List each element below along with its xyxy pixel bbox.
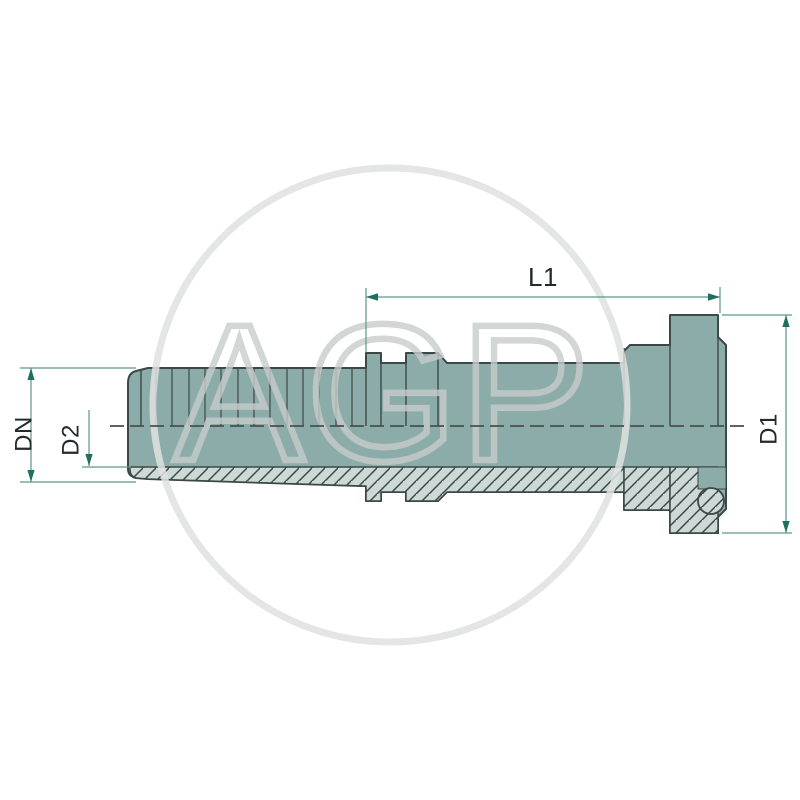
label-d2: D2	[58, 424, 85, 456]
arrow-down-icon	[85, 454, 92, 466]
o-ring-groove	[698, 467, 726, 489]
watermark: AGP	[153, 168, 627, 642]
section-wall-collar	[624, 467, 670, 510]
fitting-drawing: AGP	[0, 0, 800, 800]
arrow-down-icon	[27, 470, 34, 482]
arrow-up-icon	[27, 368, 34, 380]
label-dn: DN	[11, 416, 38, 452]
watermark-text: AGP	[174, 284, 592, 502]
technical-drawing-page: AGP	[0, 0, 800, 800]
o-ring	[698, 488, 724, 514]
arrow-down-icon	[782, 521, 789, 533]
dim-d2	[82, 410, 131, 467]
arrow-up-icon	[782, 315, 789, 327]
arrow-right-icon	[708, 293, 720, 301]
label-l1: L1	[528, 262, 558, 292]
label-d1: D1	[756, 413, 783, 445]
